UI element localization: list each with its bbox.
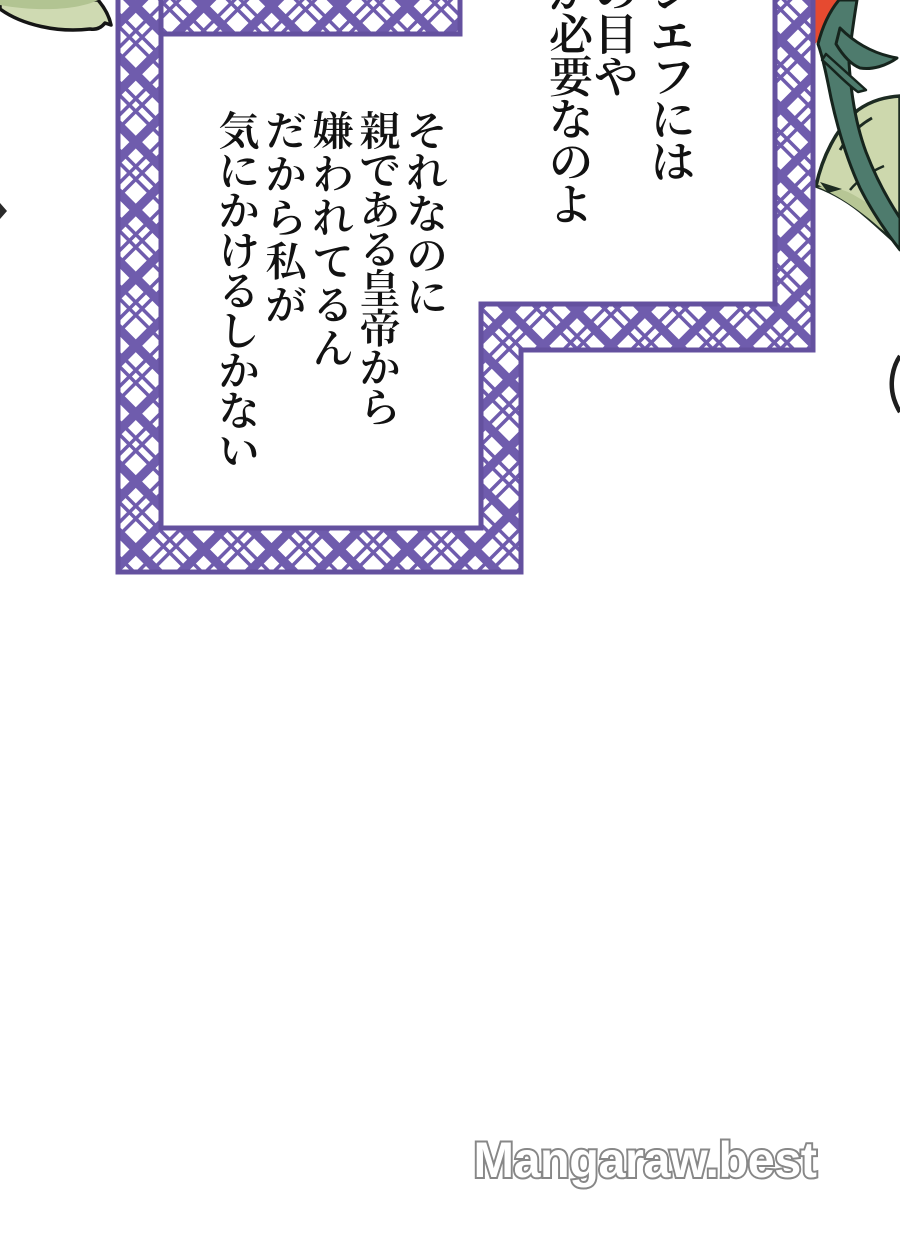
svg-text:Mangaraw.best: Mangaraw.best xyxy=(474,1132,818,1188)
